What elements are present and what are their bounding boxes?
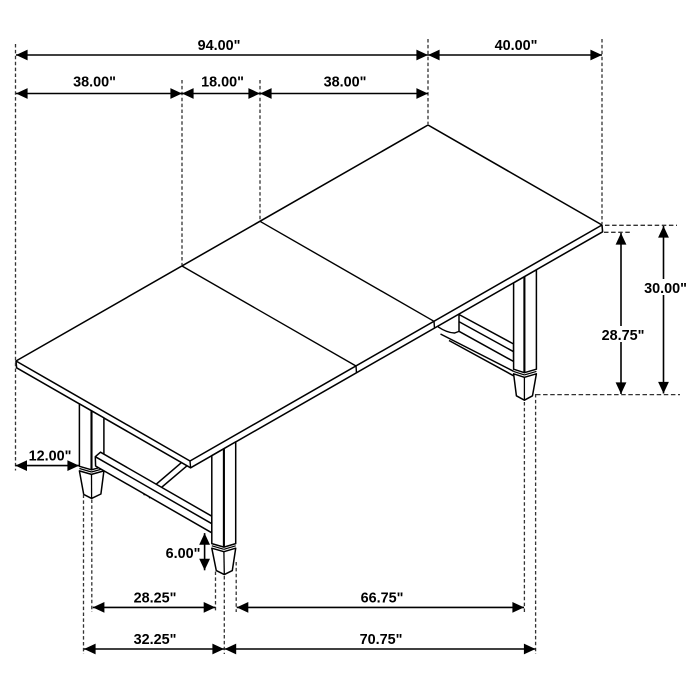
svg-text:70.75": 70.75" — [360, 632, 403, 648]
svg-text:6.00": 6.00" — [166, 546, 201, 562]
svg-text:30.00": 30.00" — [644, 281, 687, 297]
svg-text:40.00": 40.00" — [495, 38, 538, 54]
svg-text:38.00": 38.00" — [324, 75, 367, 91]
svg-text:18.00": 18.00" — [201, 75, 244, 91]
svg-text:94.00": 94.00" — [198, 38, 241, 54]
svg-text:66.75": 66.75" — [361, 591, 404, 607]
svg-text:32.25": 32.25" — [134, 632, 177, 648]
svg-text:12.00": 12.00" — [29, 448, 72, 464]
svg-text:28.75": 28.75" — [602, 328, 645, 344]
svg-text:28.25": 28.25" — [134, 591, 177, 607]
svg-text:38.00": 38.00" — [73, 75, 116, 91]
